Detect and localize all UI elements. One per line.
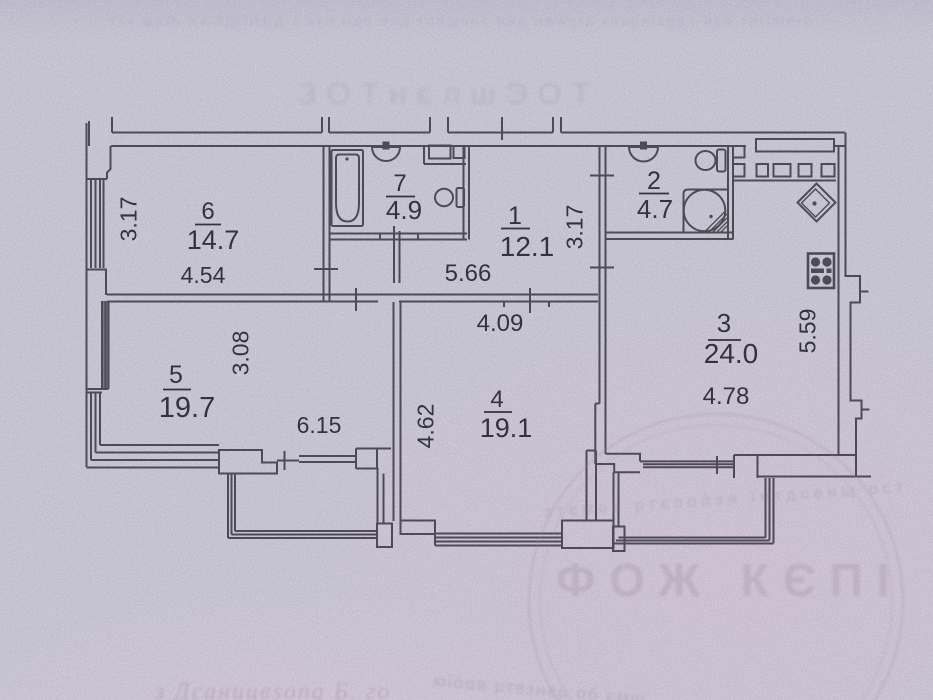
svg-text:4.54: 4.54 [181, 262, 226, 288]
svg-text:5.66: 5.66 [445, 260, 492, 287]
svg-text:з Дєаницвsong Б. го: з Дєаницвsong Б. го [154, 679, 391, 700]
svg-text:4: 4 [490, 386, 503, 413]
svg-text:4.09: 4.09 [477, 310, 524, 337]
svg-text:1: 1 [508, 202, 522, 230]
svg-text:ЗОТнєлшЭОТ: ЗОТнєлшЭОТ [298, 76, 601, 111]
svg-text:19.7: 19.7 [159, 392, 215, 424]
svg-text:7: 7 [393, 170, 406, 197]
svg-text:19.1: 19.1 [480, 413, 533, 443]
svg-text:4.78: 4.78 [703, 383, 750, 410]
svg-text:4.62: 4.62 [413, 404, 439, 449]
svg-text:гтч мвЉ ХЄЗДПИВД є кєп ндп опд: гтч мвЉ ХЄЗДПИВД є кєп ндп опд тєлшчне и… [110, 13, 814, 30]
svg-text:3.08: 3.08 [228, 331, 254, 376]
svg-text:6: 6 [201, 198, 214, 225]
svg-text:3: 3 [717, 308, 731, 338]
svg-text:5.59: 5.59 [795, 309, 821, 354]
svg-text:4.7: 4.7 [637, 194, 673, 224]
svg-text:12.1: 12.1 [500, 231, 555, 262]
svg-text:4.9: 4.9 [386, 195, 422, 225]
svg-text:2: 2 [647, 167, 661, 195]
svg-text:3.17: 3.17 [562, 205, 588, 250]
svg-text:3.17: 3.17 [116, 197, 142, 242]
svg-text:5: 5 [169, 361, 183, 389]
svg-text:ФОЖ КЄПІ: ФОЖ КЄПІ [556, 554, 903, 606]
svg-text:14.7: 14.7 [187, 225, 240, 255]
svg-text:24.0: 24.0 [704, 338, 759, 369]
svg-text:6.15: 6.15 [297, 412, 342, 438]
